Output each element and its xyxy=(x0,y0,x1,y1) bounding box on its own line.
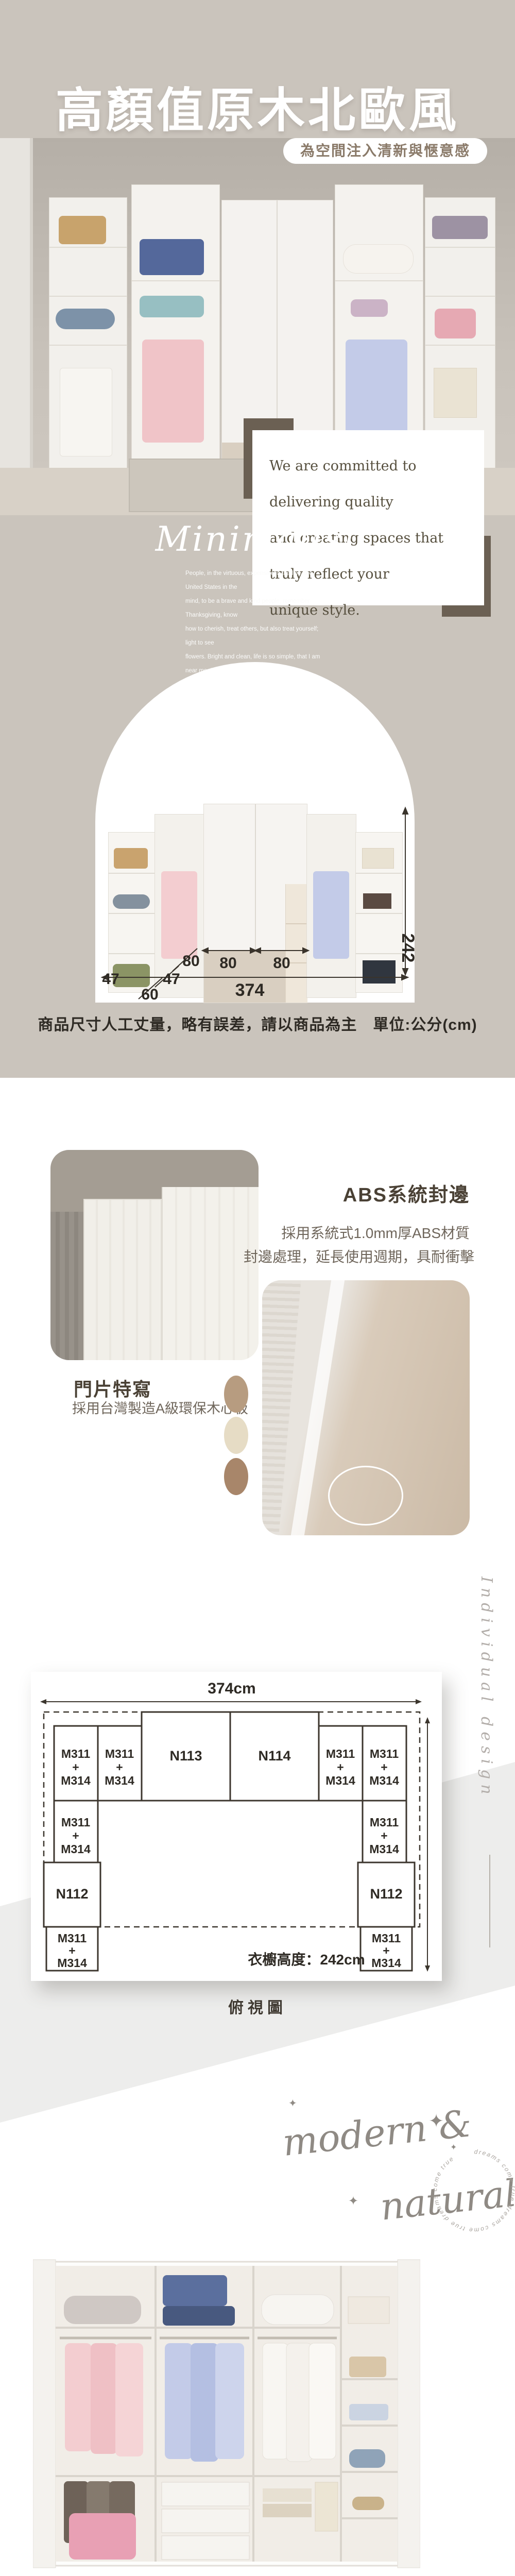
shelf-line xyxy=(425,247,495,248)
svg-text:M311: M311 xyxy=(326,1747,355,1760)
shelf-line xyxy=(425,296,495,297)
svg-text:M311: M311 xyxy=(372,1931,401,1945)
drawers xyxy=(162,2482,249,2560)
plush-item xyxy=(56,309,115,329)
hat xyxy=(352,2497,384,2510)
svg-text:M314: M314 xyxy=(105,1774,134,1787)
sparkle-icon: ✦ xyxy=(288,2097,297,2110)
dim-depth: 80 xyxy=(182,953,199,970)
dim-door-a: 80 xyxy=(219,955,236,972)
svg-text:M311: M311 xyxy=(370,1747,399,1760)
svg-text:+: + xyxy=(381,1829,387,1842)
plan-unit-n112: N112 xyxy=(56,1886,88,1902)
suitcase-pink xyxy=(69,2513,136,2560)
plan-unit-n112: N112 xyxy=(370,1886,402,1902)
hanging-shirt xyxy=(142,340,204,443)
svg-text:M311: M311 xyxy=(370,1816,399,1829)
page-title: 高顏值原木北歐風 xyxy=(0,72,515,141)
svg-text:M314: M314 xyxy=(325,1774,355,1787)
svg-text:M314: M314 xyxy=(369,1774,399,1787)
individual-design-script: Individual design xyxy=(477,1577,495,1844)
interior-structure-photo xyxy=(33,2256,420,2570)
door-frame-edge xyxy=(30,138,33,515)
abs-heading: ABS系統封邊 xyxy=(262,1179,470,1207)
dim-side-a: 47 xyxy=(163,971,180,988)
svg-text:M311: M311 xyxy=(105,1747,134,1760)
door-frame xyxy=(0,138,30,515)
dim-total-width: 374 xyxy=(235,980,265,1000)
pillow-item xyxy=(343,244,414,274)
hanging-shirt xyxy=(60,368,112,456)
sparkle-icon: ✦ xyxy=(348,2194,358,2209)
left-wardrobe xyxy=(131,184,220,505)
tote-bag xyxy=(315,2482,338,2531)
dimension-arch: 80 80 80 47 47 60 374 242 xyxy=(95,662,415,1003)
shelf-line xyxy=(49,296,127,297)
dim-door-b: 80 xyxy=(273,955,290,972)
svg-text:M311: M311 xyxy=(61,1816,90,1829)
svg-text:+: + xyxy=(337,1760,344,1774)
svg-text:dreams come true dreams come t: dreams come true dreams come true dreams… xyxy=(431,2148,515,2234)
curtain xyxy=(50,1212,83,1360)
open-door-left xyxy=(33,2260,56,2568)
basket xyxy=(349,2357,386,2377)
hat-item xyxy=(351,299,388,317)
color-swatch-brown xyxy=(224,1458,248,1495)
paragraph-line: how to cherish, treat others, but also t… xyxy=(185,622,330,650)
plan-unit-n113: N113 xyxy=(169,1748,202,1764)
folded-stack xyxy=(263,2488,312,2502)
svg-text:M314: M314 xyxy=(61,1774,91,1787)
svg-text:M314: M314 xyxy=(57,1956,87,1970)
color-swatch-tan xyxy=(224,1376,248,1413)
svg-text:M314: M314 xyxy=(369,1842,399,1856)
shelf-line xyxy=(132,280,219,281)
plan-height-note: 衣櫥高度：242cm xyxy=(248,1951,365,1968)
towel-item xyxy=(432,216,488,239)
product-page: 高顏值原木北歐風 為空間注入清新與愜意感 We are committed to… xyxy=(0,0,515,2576)
shelf-line xyxy=(49,247,127,248)
shark-plush xyxy=(349,2449,385,2468)
minimalist-script: Minimalist xyxy=(0,519,515,559)
svg-text:M311: M311 xyxy=(58,1931,87,1945)
plan-caption: 俯視圖 xyxy=(0,1995,515,2018)
abs-line2: 封邊處理，延長使用週期，具耐衝擊 xyxy=(206,1246,474,1266)
highlight-circle xyxy=(328,1466,403,1526)
svg-text:+: + xyxy=(72,1760,79,1774)
basket-item xyxy=(59,216,106,244)
svg-text:M314: M314 xyxy=(371,1956,401,1970)
left-corner-shelf xyxy=(49,197,127,500)
open-door-right xyxy=(398,2260,420,2568)
dim-side-b: 47 xyxy=(102,971,119,988)
abs-line1: 採用系統式1.0mm厚ABS材質 xyxy=(206,1222,470,1243)
shelf-line xyxy=(335,280,423,281)
plan-unit-n114: N114 xyxy=(258,1748,290,1764)
floorplan-diagram: 374cm M311+M314 M311+M314 M311+M314 M311… xyxy=(31,1672,442,1981)
folded-stack xyxy=(263,2504,312,2517)
door-panel-left xyxy=(83,1199,162,1360)
color-swatch-cream xyxy=(224,1417,248,1454)
shirts-pink xyxy=(65,2343,143,2456)
quote-line: We are committed to delivering quality xyxy=(269,448,475,520)
svg-text:+: + xyxy=(72,1829,79,1842)
dimension-caption: 商品尺寸人工丈量，略有誤差，請以商品為主 單位:公分(cm) xyxy=(0,1012,515,1035)
shirts-white xyxy=(263,2343,336,2462)
dimension-annotations: 80 80 80 47 47 60 374 242 xyxy=(95,662,415,1003)
door-section-subtitle: 採用台灣製造A級環保木心板 xyxy=(72,1397,248,1417)
abs-edge-photo xyxy=(262,1280,470,1535)
dim-height: 242 xyxy=(398,934,415,963)
dim-corner: 60 xyxy=(141,986,158,1003)
suitcase-item xyxy=(140,239,204,275)
ring-text: dreams come true dreams come true dreams… xyxy=(426,2143,515,2239)
shelf-line xyxy=(49,345,127,346)
svg-text:M311: M311 xyxy=(61,1747,90,1760)
suitcase-blue-2 xyxy=(163,2306,235,2326)
pillow xyxy=(262,2295,334,2325)
hanging-shirt xyxy=(346,340,407,443)
blanket-roll xyxy=(64,2296,141,2324)
folded-towel xyxy=(349,2404,388,2420)
svg-text:+: + xyxy=(381,1760,387,1774)
tote-item xyxy=(434,368,477,418)
paragraph-line: mind, to be a brave and kind people, rem… xyxy=(185,595,330,622)
paragraph-line: People, in the virtuous, expensive in th… xyxy=(185,567,330,595)
subtitle-pill: 為空間注入清新與愜意感 xyxy=(283,138,487,164)
svg-text:M314: M314 xyxy=(61,1842,91,1856)
shelf-line xyxy=(425,345,495,346)
svg-text:+: + xyxy=(116,1760,123,1774)
svg-text:+: + xyxy=(383,1944,389,1957)
blanket-item xyxy=(140,296,204,317)
svg-text:+: + xyxy=(68,1944,75,1957)
plan-total-width: 374cm xyxy=(208,1680,255,1697)
handbag-item xyxy=(435,309,476,338)
side-rule xyxy=(489,1855,490,1947)
door-panel-right xyxy=(162,1187,259,1360)
suitcase-blue xyxy=(163,2275,227,2306)
floorplan-card: 374cm M311+M314 M311+M314 M311+M314 M311… xyxy=(31,1672,442,1981)
shirts-lavender xyxy=(165,2343,244,2462)
storage-box xyxy=(348,2297,389,2324)
